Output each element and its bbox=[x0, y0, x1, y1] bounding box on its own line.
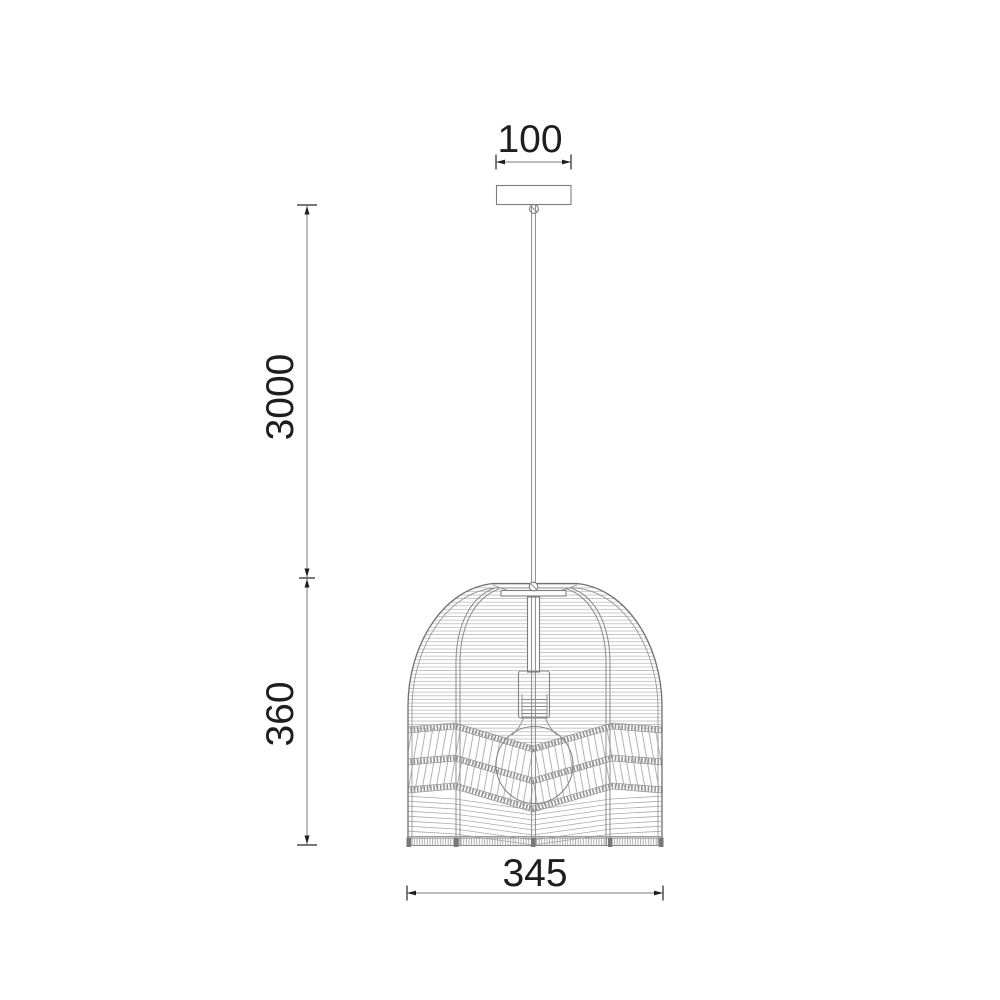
canopy-plate bbox=[497, 186, 572, 205]
arrow-left-icon bbox=[407, 891, 416, 896]
dimension-shade-width: 345 bbox=[407, 852, 663, 901]
suspension-length-value: 3000 bbox=[259, 354, 302, 441]
suspension-cord bbox=[532, 205, 536, 597]
rim-foot bbox=[454, 838, 459, 848]
ceiling-canopy bbox=[497, 186, 572, 214]
arrow-up-icon bbox=[305, 206, 310, 215]
shade-width-value: 345 bbox=[502, 852, 567, 895]
rim-foot bbox=[531, 838, 536, 848]
rim-foot bbox=[659, 838, 664, 848]
stem-tube bbox=[528, 597, 540, 672]
rim-foot bbox=[608, 838, 613, 848]
dimension-vertical: 3000 360 bbox=[259, 205, 317, 845]
drawing-svg: 100 3000 360 345 bbox=[0, 0, 1000, 1000]
arrow-right-icon bbox=[562, 160, 571, 165]
rim-foot bbox=[407, 838, 412, 848]
arrow-up-icon bbox=[305, 579, 310, 588]
shade-height-value: 360 bbox=[259, 681, 302, 746]
arrow-down-icon bbox=[305, 569, 310, 578]
dimension-canopy-width: 100 bbox=[496, 118, 571, 170]
arrow-right-icon bbox=[654, 891, 663, 896]
arrow-down-icon bbox=[305, 836, 310, 845]
pendant-light-dimension-drawing: 100 3000 360 345 bbox=[0, 0, 1000, 1000]
canopy-width-value: 100 bbox=[497, 118, 562, 161]
